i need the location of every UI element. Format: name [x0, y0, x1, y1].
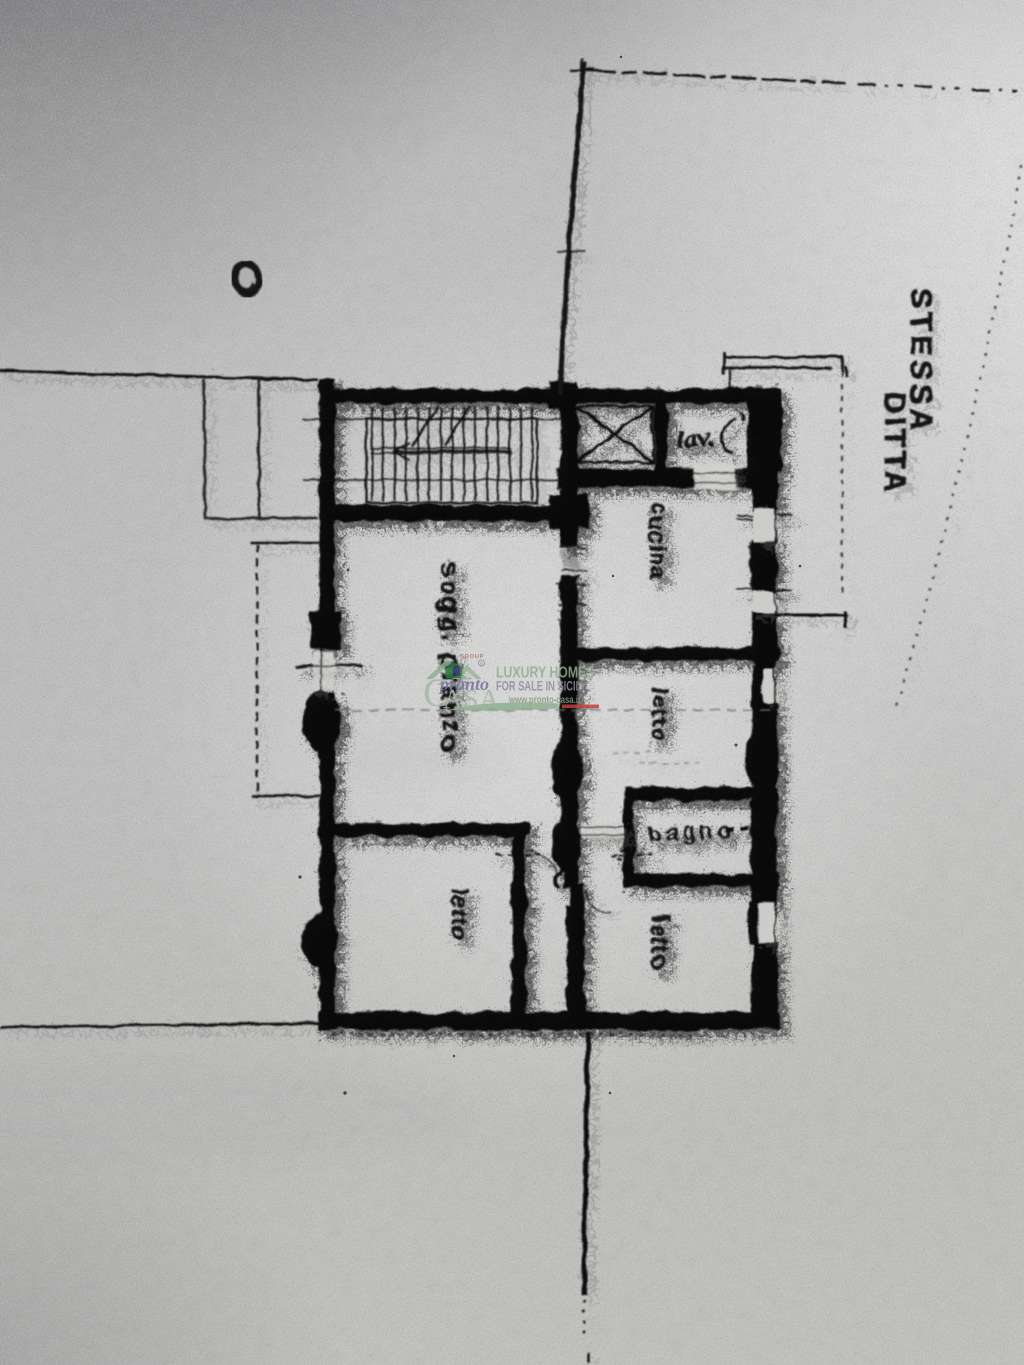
svg-text:GROUP: GROUP: [460, 654, 484, 660]
svg-text:FOR SALE IN SICILY: FOR SALE IN SICILY: [496, 678, 587, 694]
svg-text:R: R: [480, 661, 484, 667]
svg-text:pronto: pronto: [438, 674, 489, 694]
svg-text:www.pronto-casa.it: www.pronto-casa.it: [508, 694, 580, 705]
